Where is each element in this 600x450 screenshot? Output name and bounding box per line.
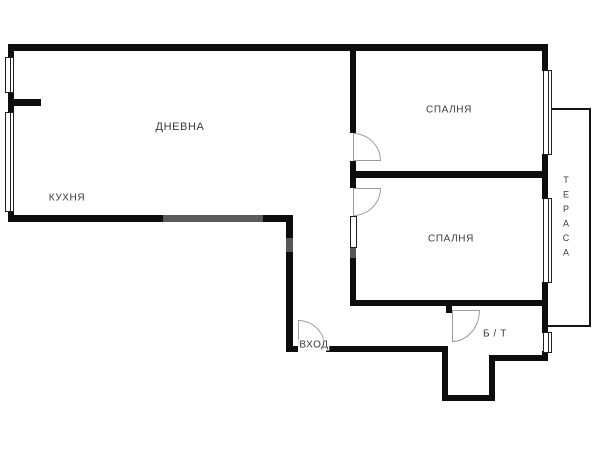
wall-right-1 xyxy=(542,44,548,71)
watermark-smudge-2 xyxy=(286,238,295,252)
window-pane-line xyxy=(548,199,549,282)
wall-kitchen-stub xyxy=(8,99,41,106)
room-label-entry: ВХОД xyxy=(298,340,329,351)
window-pane-line xyxy=(10,58,11,92)
floor-plan-page: ДНЕВНА КУХНЯ СПАЛНЯ СПАЛНЯ Б / Т ВХОД ТЕ… xyxy=(0,0,600,450)
room-label-bedroom1: СПАЛНЯ xyxy=(426,105,472,116)
wall-entry xyxy=(326,346,448,352)
terrace-line-right xyxy=(589,108,591,327)
wall-bedrooms-left-1 xyxy=(350,44,356,133)
window-bedroom2-right xyxy=(543,198,552,283)
room-label-terrace: ТЕРАСА xyxy=(561,175,571,262)
window-bedroom1-right xyxy=(543,70,552,155)
window-bath-right xyxy=(543,332,552,353)
door-arc-bedroom2 xyxy=(353,188,381,216)
terrace-line-top xyxy=(548,108,591,110)
window-kitchen-left xyxy=(5,112,14,212)
wall-hall-left xyxy=(286,215,293,352)
wall-bedroom-divider xyxy=(356,171,542,178)
wall-top xyxy=(8,44,548,51)
room-label-bath: Б / Т xyxy=(483,329,507,340)
room-label-living: ДНЕВНА xyxy=(156,121,205,133)
terrace-line-bottom xyxy=(548,325,591,327)
wall-bath-bottom xyxy=(489,355,548,361)
door-leaf-bedroom2 xyxy=(350,216,357,248)
wall-entry-left-seg xyxy=(286,346,298,352)
door-arc-bedroom1 xyxy=(353,133,381,161)
window-pane-line xyxy=(548,333,549,352)
wall-pocket-right xyxy=(489,356,495,401)
window-pane-line xyxy=(10,113,11,211)
door-arc-bath xyxy=(452,310,480,342)
watermark-smudge-1 xyxy=(163,215,263,222)
wall-pocket-left xyxy=(442,346,448,401)
watermark-smudge-3 xyxy=(350,248,357,258)
floor-plan: ДНЕВНА КУХНЯ СПАЛНЯ СПАЛНЯ Б / Т ВХОД ТЕ… xyxy=(0,0,600,450)
window-living-left xyxy=(5,57,14,93)
room-label-kitchen: КУХНЯ xyxy=(49,193,85,204)
wall-pocket-bottom xyxy=(442,395,495,401)
wall-right-2 xyxy=(542,154,548,199)
room-label-bedroom2: СПАЛНЯ xyxy=(428,234,474,245)
window-pane-line xyxy=(548,71,549,154)
